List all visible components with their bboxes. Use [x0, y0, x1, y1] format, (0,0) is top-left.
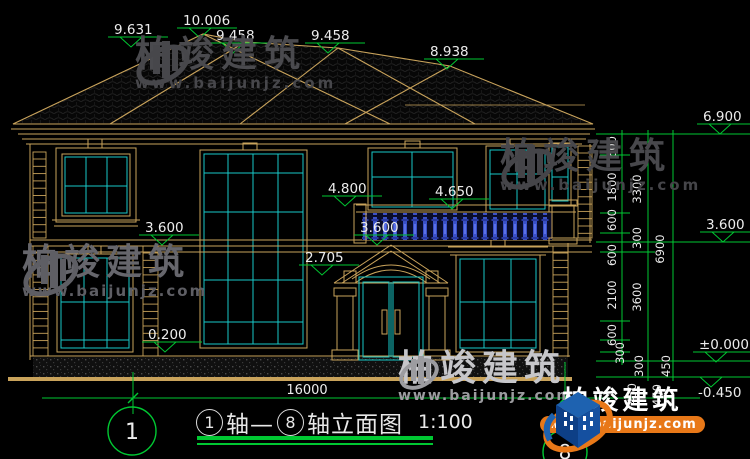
dim-label: 600 [605, 209, 619, 231]
elevation-marker: 8.938 [430, 44, 469, 60]
window-2f-right-narrow [549, 143, 571, 205]
balcony-door-right [486, 139, 549, 212]
window-1f-right [448, 239, 548, 352]
window-1f-left [50, 246, 140, 352]
dim-label: 6900 [653, 234, 667, 263]
title-axis-bubble-8: 8 [277, 409, 304, 436]
dim-label: 300 [630, 227, 644, 249]
elevation-marker: 10.006 [183, 13, 230, 29]
elevation-marker: 6.900 [703, 109, 742, 125]
elevation-marker: 4.800 [328, 181, 367, 197]
elevation-marker: 3.600 [706, 217, 745, 233]
dim-label: 600 [605, 136, 619, 158]
window-2f-left [52, 139, 140, 226]
walls [8, 144, 592, 381]
elevation-drawing: 18160009.63110.0069.4589.4588.9384.8004.… [0, 0, 750, 459]
elevation-marker: 4.650 [435, 184, 474, 200]
brand-logo: 柏竣建筑 www.baijunjz.com [540, 388, 705, 433]
window-stair-tall [200, 143, 307, 348]
elevation-marker: ±0.000 [699, 337, 749, 353]
elevation-marker: 9.458 [311, 28, 350, 44]
roof [13, 34, 593, 124]
dim-label: 450 [659, 355, 673, 377]
drawing-title: 1 轴— 8 轴立面图 1:100 [196, 405, 473, 439]
title-scale: 1:100 [418, 411, 473, 433]
entrance-double-door [359, 277, 423, 360]
dim-label: 3600 [630, 282, 644, 311]
overall-width-dim: 16000 [286, 383, 327, 398]
title-underline-thick [197, 436, 433, 440]
ground-line [8, 377, 572, 381]
title-segment-2: 轴立面图 [307, 405, 403, 439]
eave-cornice [11, 124, 595, 144]
dim-label: 300 [632, 355, 646, 377]
plinth-texture [33, 357, 568, 377]
dim-label: 300 [613, 342, 627, 364]
axis-bubble-1: 1 [125, 420, 139, 445]
brand-logo-icon [540, 388, 618, 458]
elevation-marker: 2.705 [305, 250, 344, 266]
title-underline-thin [197, 443, 433, 445]
elevation-marker: 3.600 [360, 220, 399, 236]
elevation-marker: 0.200 [148, 327, 187, 343]
elevation-marker: 3.600 [145, 220, 184, 236]
title-segment-1: 轴— [226, 405, 274, 439]
elevation-marker: 9.631 [114, 22, 153, 38]
dim-label: 3300 [630, 174, 644, 203]
title-axis-bubble-1: 1 [196, 409, 223, 436]
dim-label: 1800 [605, 172, 619, 201]
elevation-marker: 9.458 [216, 28, 255, 44]
dim-label: 2100 [605, 280, 619, 309]
dim-label: 600 [605, 244, 619, 266]
entrance-portico [332, 245, 450, 360]
